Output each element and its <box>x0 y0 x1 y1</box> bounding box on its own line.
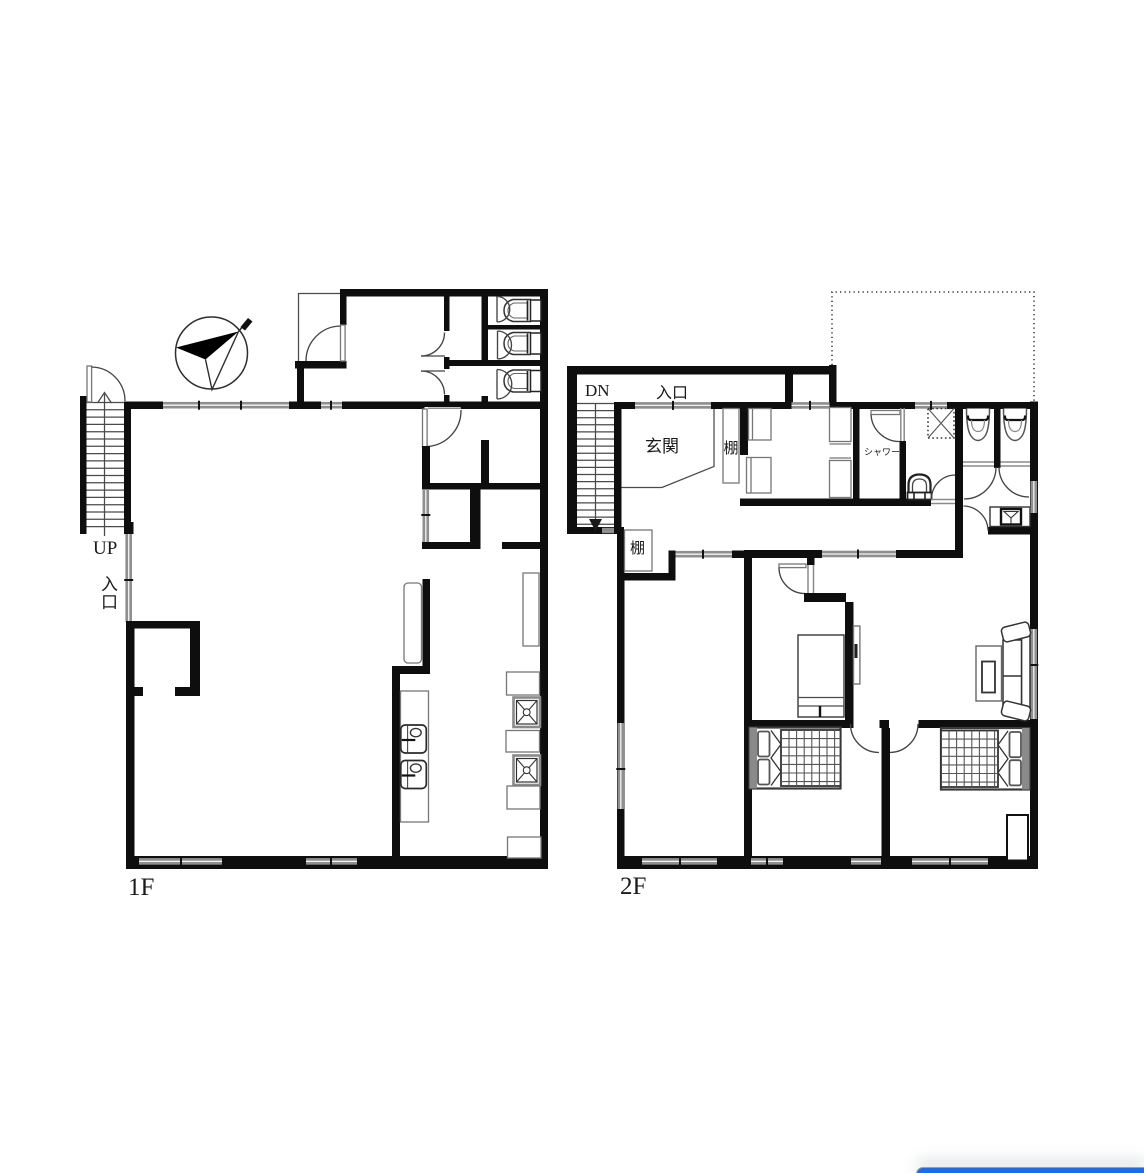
svg-text:DN: DN <box>585 381 610 400</box>
svg-text:2F: 2F <box>620 873 646 900</box>
svg-text:入: 入 <box>101 575 118 594</box>
svg-text:棚: 棚 <box>724 440 739 457</box>
svg-text:入口: 入口 <box>656 385 688 402</box>
svg-text:口: 口 <box>101 593 118 612</box>
svg-text:棚: 棚 <box>630 540 645 557</box>
svg-text:シャワー: シャワー <box>864 447 900 457</box>
svg-text:UP: UP <box>93 538 117 559</box>
svg-text:1F: 1F <box>128 874 154 901</box>
svg-text:玄関: 玄関 <box>645 437 679 456</box>
